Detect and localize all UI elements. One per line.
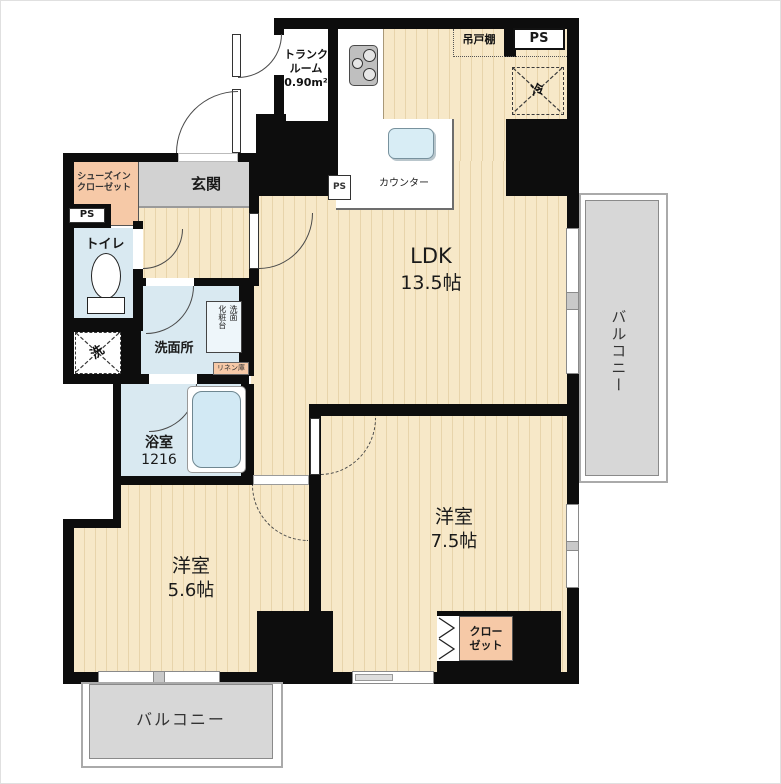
- entry-door-opening: [178, 153, 238, 162]
- closet-label-line1: クロー: [470, 625, 503, 638]
- wall: [309, 404, 579, 416]
- wall: [63, 153, 178, 162]
- floor-plan: バルコニー バルコニー カウンター 吊戸棚 冷 PS PS PS 洗: [0, 0, 781, 784]
- bathroom-size: 1216: [141, 452, 177, 468]
- outside-notch: [61, 381, 113, 521]
- washroom-label: 洗面所: [147, 340, 201, 358]
- bedroom-second-door-opening: [253, 475, 309, 485]
- wall: [121, 331, 141, 376]
- balcony-right-label: バルコニー: [601, 296, 635, 406]
- vanity-label-line1: 洗面: [229, 305, 238, 321]
- washroom-door-opening: [146, 278, 194, 286]
- folding-door-icon: [437, 616, 459, 661]
- wall: [567, 18, 579, 229]
- entrance-label: 玄関: [179, 173, 233, 195]
- bedroom-second-name: 洋室: [172, 555, 210, 577]
- shoes-line1: シューズイン: [77, 172, 131, 182]
- trunk-door-arc: [238, 34, 282, 78]
- ps-shaft-left: PS: [69, 208, 105, 223]
- hanging-cupboard-label: 吊戸棚: [454, 32, 504, 48]
- kitchen-sink-icon: [388, 128, 434, 159]
- bedroom-main-name: 洋室: [435, 506, 473, 528]
- bedroom-main-door-leaf: [310, 418, 320, 475]
- bathroom-name: 浴室: [145, 435, 173, 451]
- bathroom-label: 浴室1216: [129, 427, 189, 477]
- bathroom-door-opening: [149, 374, 197, 384]
- entry-door-arc: [176, 91, 238, 153]
- ldk-name: LDK: [410, 244, 452, 268]
- vanity-label: 洗面 化粧台: [209, 305, 239, 351]
- stove-burner: [352, 58, 363, 69]
- toilet-label: トイレ: [79, 236, 131, 254]
- stove-icon: [349, 45, 378, 86]
- vanity-unit: 洗面 化粧台: [206, 301, 242, 353]
- wall: [567, 421, 579, 504]
- closet-folding-door: [437, 616, 459, 661]
- bedroom-main-bottom-window-pane: [355, 674, 393, 681]
- shoes-closet-label: シューズインクローゼット: [72, 167, 136, 199]
- wall: [113, 476, 253, 485]
- trunk-line1: トランク: [284, 48, 328, 61]
- wall: [113, 383, 121, 528]
- closet-label-line2: ゼット: [470, 639, 503, 652]
- wall: [249, 161, 259, 214]
- wall: [506, 119, 567, 196]
- stove-burner: [363, 49, 376, 62]
- toilet-bowl: [91, 253, 121, 299]
- stove-burner: [363, 68, 376, 81]
- bedroom-main-side-window-mullion: [566, 541, 579, 551]
- balcony-bottom-label: バルコニー: [111, 708, 251, 732]
- bathtub-icon: [187, 386, 246, 473]
- ldk-label: LDK13.5帖: [381, 243, 481, 295]
- vanity-label-line2: 化粧台: [218, 305, 227, 329]
- toilet-tank: [87, 297, 125, 314]
- ldk-window-mullion: [566, 292, 579, 310]
- bedroom-main-label: 洋室7.5帖: [404, 504, 504, 556]
- trunk-room-label: トランクルーム0.90m²: [283, 39, 329, 99]
- ldk-size: 13.5帖: [400, 272, 461, 294]
- wall: [63, 318, 141, 332]
- washer-box: 洗: [75, 332, 121, 374]
- wall: [257, 611, 333, 673]
- wall: [249, 268, 259, 286]
- ldk-door-leaf: [249, 213, 259, 269]
- counter-label: カウンター: [364, 176, 444, 192]
- bedroom-second-size: 5.6帖: [168, 580, 215, 601]
- toilet-icon: [85, 251, 127, 317]
- wall: [567, 588, 579, 684]
- trunk-area: 0.90m²: [284, 76, 327, 89]
- bathtub-inner: [192, 391, 241, 468]
- bedroom-second-label: 洋室5.6帖: [141, 553, 241, 605]
- linen-storage: リネン庫: [213, 362, 249, 375]
- trunk-line2: ルーム: [290, 62, 323, 75]
- refrigerator-box: 冷: [512, 67, 564, 115]
- ps-shaft-kitchen: PS: [328, 175, 351, 200]
- wall: [256, 121, 338, 196]
- hanging-cupboard-line-h: [453, 56, 567, 57]
- bedroom-main-size: 7.5帖: [431, 531, 478, 552]
- shoes-line2: クローゼット: [77, 183, 131, 193]
- wall: [63, 519, 74, 684]
- wall: [328, 28, 338, 123]
- ps-shaft-top: PS: [513, 28, 565, 50]
- toilet-door-opening: [133, 229, 143, 269]
- floor-corridor: [251, 281, 309, 477]
- closet: クローゼット: [459, 616, 513, 661]
